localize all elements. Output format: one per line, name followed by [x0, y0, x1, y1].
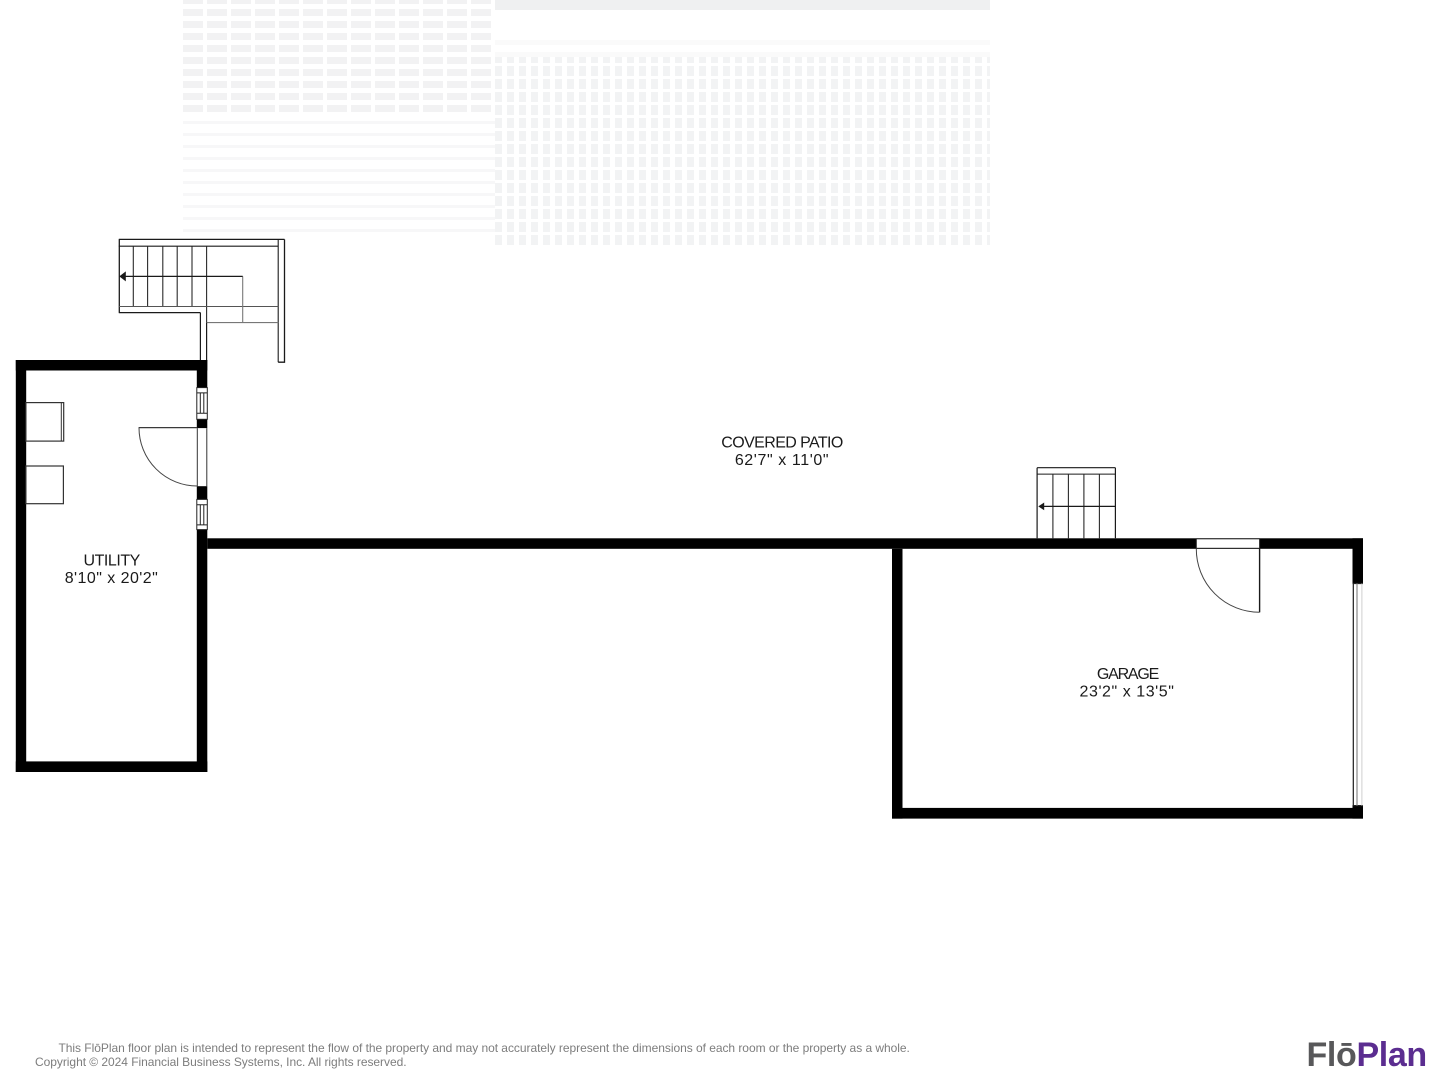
- svg-text:GARAGE: GARAGE: [1097, 666, 1159, 683]
- svg-text:62'7" x 11'0": 62'7" x 11'0": [735, 452, 829, 469]
- svg-text:8'10" x 20'2": 8'10" x 20'2": [65, 570, 159, 587]
- svg-text:UTILITY: UTILITY: [83, 553, 140, 570]
- svg-text:COVERED PATIO: COVERED PATIO: [721, 435, 843, 452]
- svg-text:23'2" x 13'5": 23'2" x 13'5": [1080, 684, 1175, 701]
